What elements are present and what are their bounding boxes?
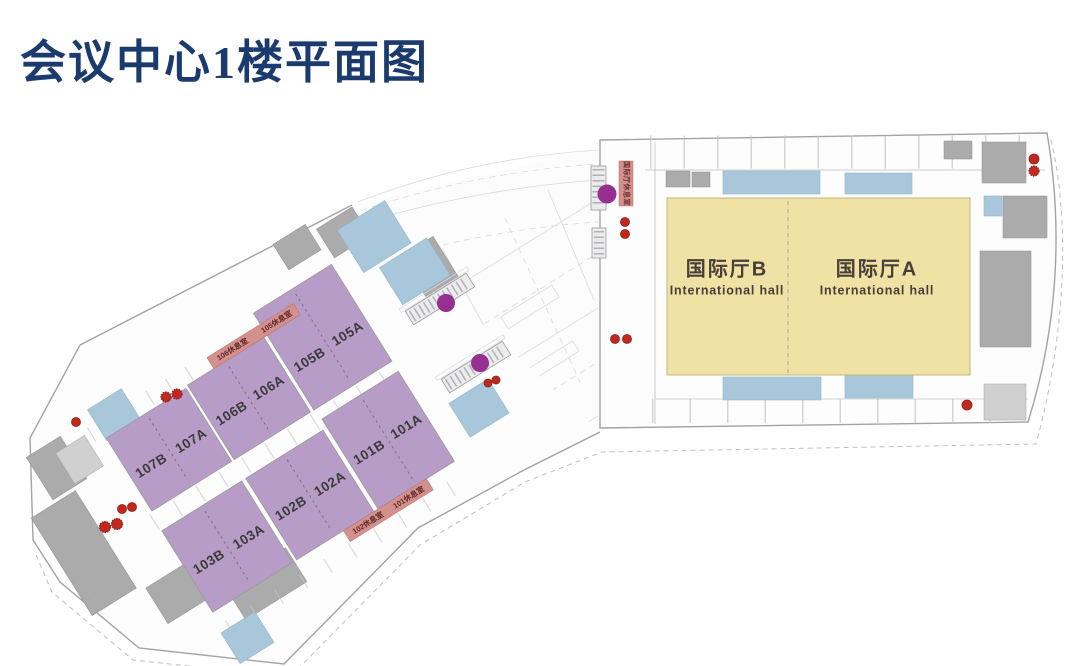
location-dot (598, 185, 617, 204)
hall-a-name: 国际厅A (836, 257, 918, 280)
hall-a: 国际厅A International hall (820, 257, 934, 297)
hall-b-name: 国际厅B (686, 257, 768, 280)
hall-a-subtitle: International hall (820, 283, 934, 297)
floor-plan: 国际厅B International hall 国际厅A Internation… (0, 0, 1080, 666)
hall-b-subtitle: International hall (670, 283, 784, 297)
location-dot (437, 294, 455, 312)
hall-b: 国际厅B International hall (670, 257, 784, 297)
floor-plan-page: 会议中心1楼平面图 (0, 0, 1080, 666)
hall-lounge-label: 国际厅休息室 (623, 161, 632, 206)
location-dot (471, 354, 489, 372)
